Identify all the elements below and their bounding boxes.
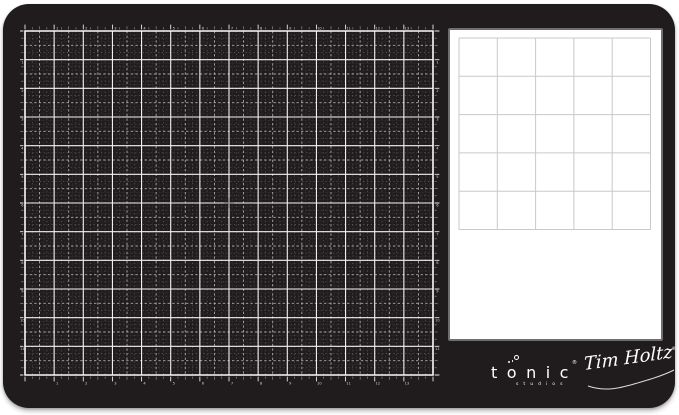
tonic-wordmark: tonic® xyxy=(491,354,591,382)
svg-text:13: 13 xyxy=(405,27,410,31)
svg-text:4: 4 xyxy=(21,146,24,150)
svg-text:1: 1 xyxy=(436,60,438,64)
svg-text:5: 5 xyxy=(436,175,438,179)
svg-text:9: 9 xyxy=(436,290,439,294)
svg-text:4: 4 xyxy=(436,146,439,150)
svg-text:8: 8 xyxy=(436,261,439,265)
white-work-panel xyxy=(448,28,663,341)
panel-grid xyxy=(450,30,661,339)
svg-text:7: 7 xyxy=(231,27,233,31)
tonic-letter-n: n xyxy=(526,364,546,382)
svg-text:7: 7 xyxy=(21,232,23,236)
tonic-letter-o-wrap: o xyxy=(507,364,526,382)
branding-area: tonic® studios Tim Holtz ® xyxy=(3,341,675,408)
svg-text:6: 6 xyxy=(21,204,24,208)
svg-text:4: 4 xyxy=(143,27,146,31)
svg-text:10: 10 xyxy=(435,318,440,322)
studios-label: studios xyxy=(516,382,591,387)
svg-text:11: 11 xyxy=(346,27,351,31)
tim-holtz-signature: Tim Holtz ® xyxy=(582,342,678,400)
tonic-letter-o: o xyxy=(507,364,526,382)
bubbles-icon xyxy=(508,356,520,365)
registered-mark: ® xyxy=(572,360,577,366)
svg-text:3: 3 xyxy=(114,27,116,31)
svg-text:9: 9 xyxy=(289,27,292,31)
glass-media-mat: 1122334455667788991010111112121313112233… xyxy=(3,4,675,408)
svg-text:2: 2 xyxy=(436,89,438,93)
svg-text:8: 8 xyxy=(260,27,263,31)
svg-text:1: 1 xyxy=(56,27,58,31)
tonic-letter-i: i xyxy=(546,364,560,382)
svg-text:10: 10 xyxy=(317,27,322,31)
tonic-letter-t: t xyxy=(491,364,507,382)
svg-text:8: 8 xyxy=(21,261,24,265)
svg-text:5: 5 xyxy=(21,175,23,179)
product-photo: 1122334455667788991010111112121313112233… xyxy=(0,0,679,415)
svg-text:7: 7 xyxy=(436,232,438,236)
svg-text:3: 3 xyxy=(21,118,23,122)
svg-text:3: 3 xyxy=(436,118,438,122)
svg-text:6: 6 xyxy=(202,27,205,31)
tonic-studios-logo: tonic® studios xyxy=(491,354,591,396)
svg-text:5: 5 xyxy=(173,27,175,31)
svg-text:2: 2 xyxy=(85,27,87,31)
svg-text:12: 12 xyxy=(375,27,380,31)
registered-mark: ® xyxy=(672,347,677,352)
svg-text:9: 9 xyxy=(21,290,24,294)
tonic-letter-c: c xyxy=(560,364,578,382)
svg-text:6: 6 xyxy=(436,204,439,208)
measuring-grid: 1122334455667788991010111112121313112233… xyxy=(20,22,440,390)
svg-text:1: 1 xyxy=(21,60,23,64)
svg-text:10: 10 xyxy=(20,318,25,322)
svg-text:2: 2 xyxy=(21,89,23,93)
